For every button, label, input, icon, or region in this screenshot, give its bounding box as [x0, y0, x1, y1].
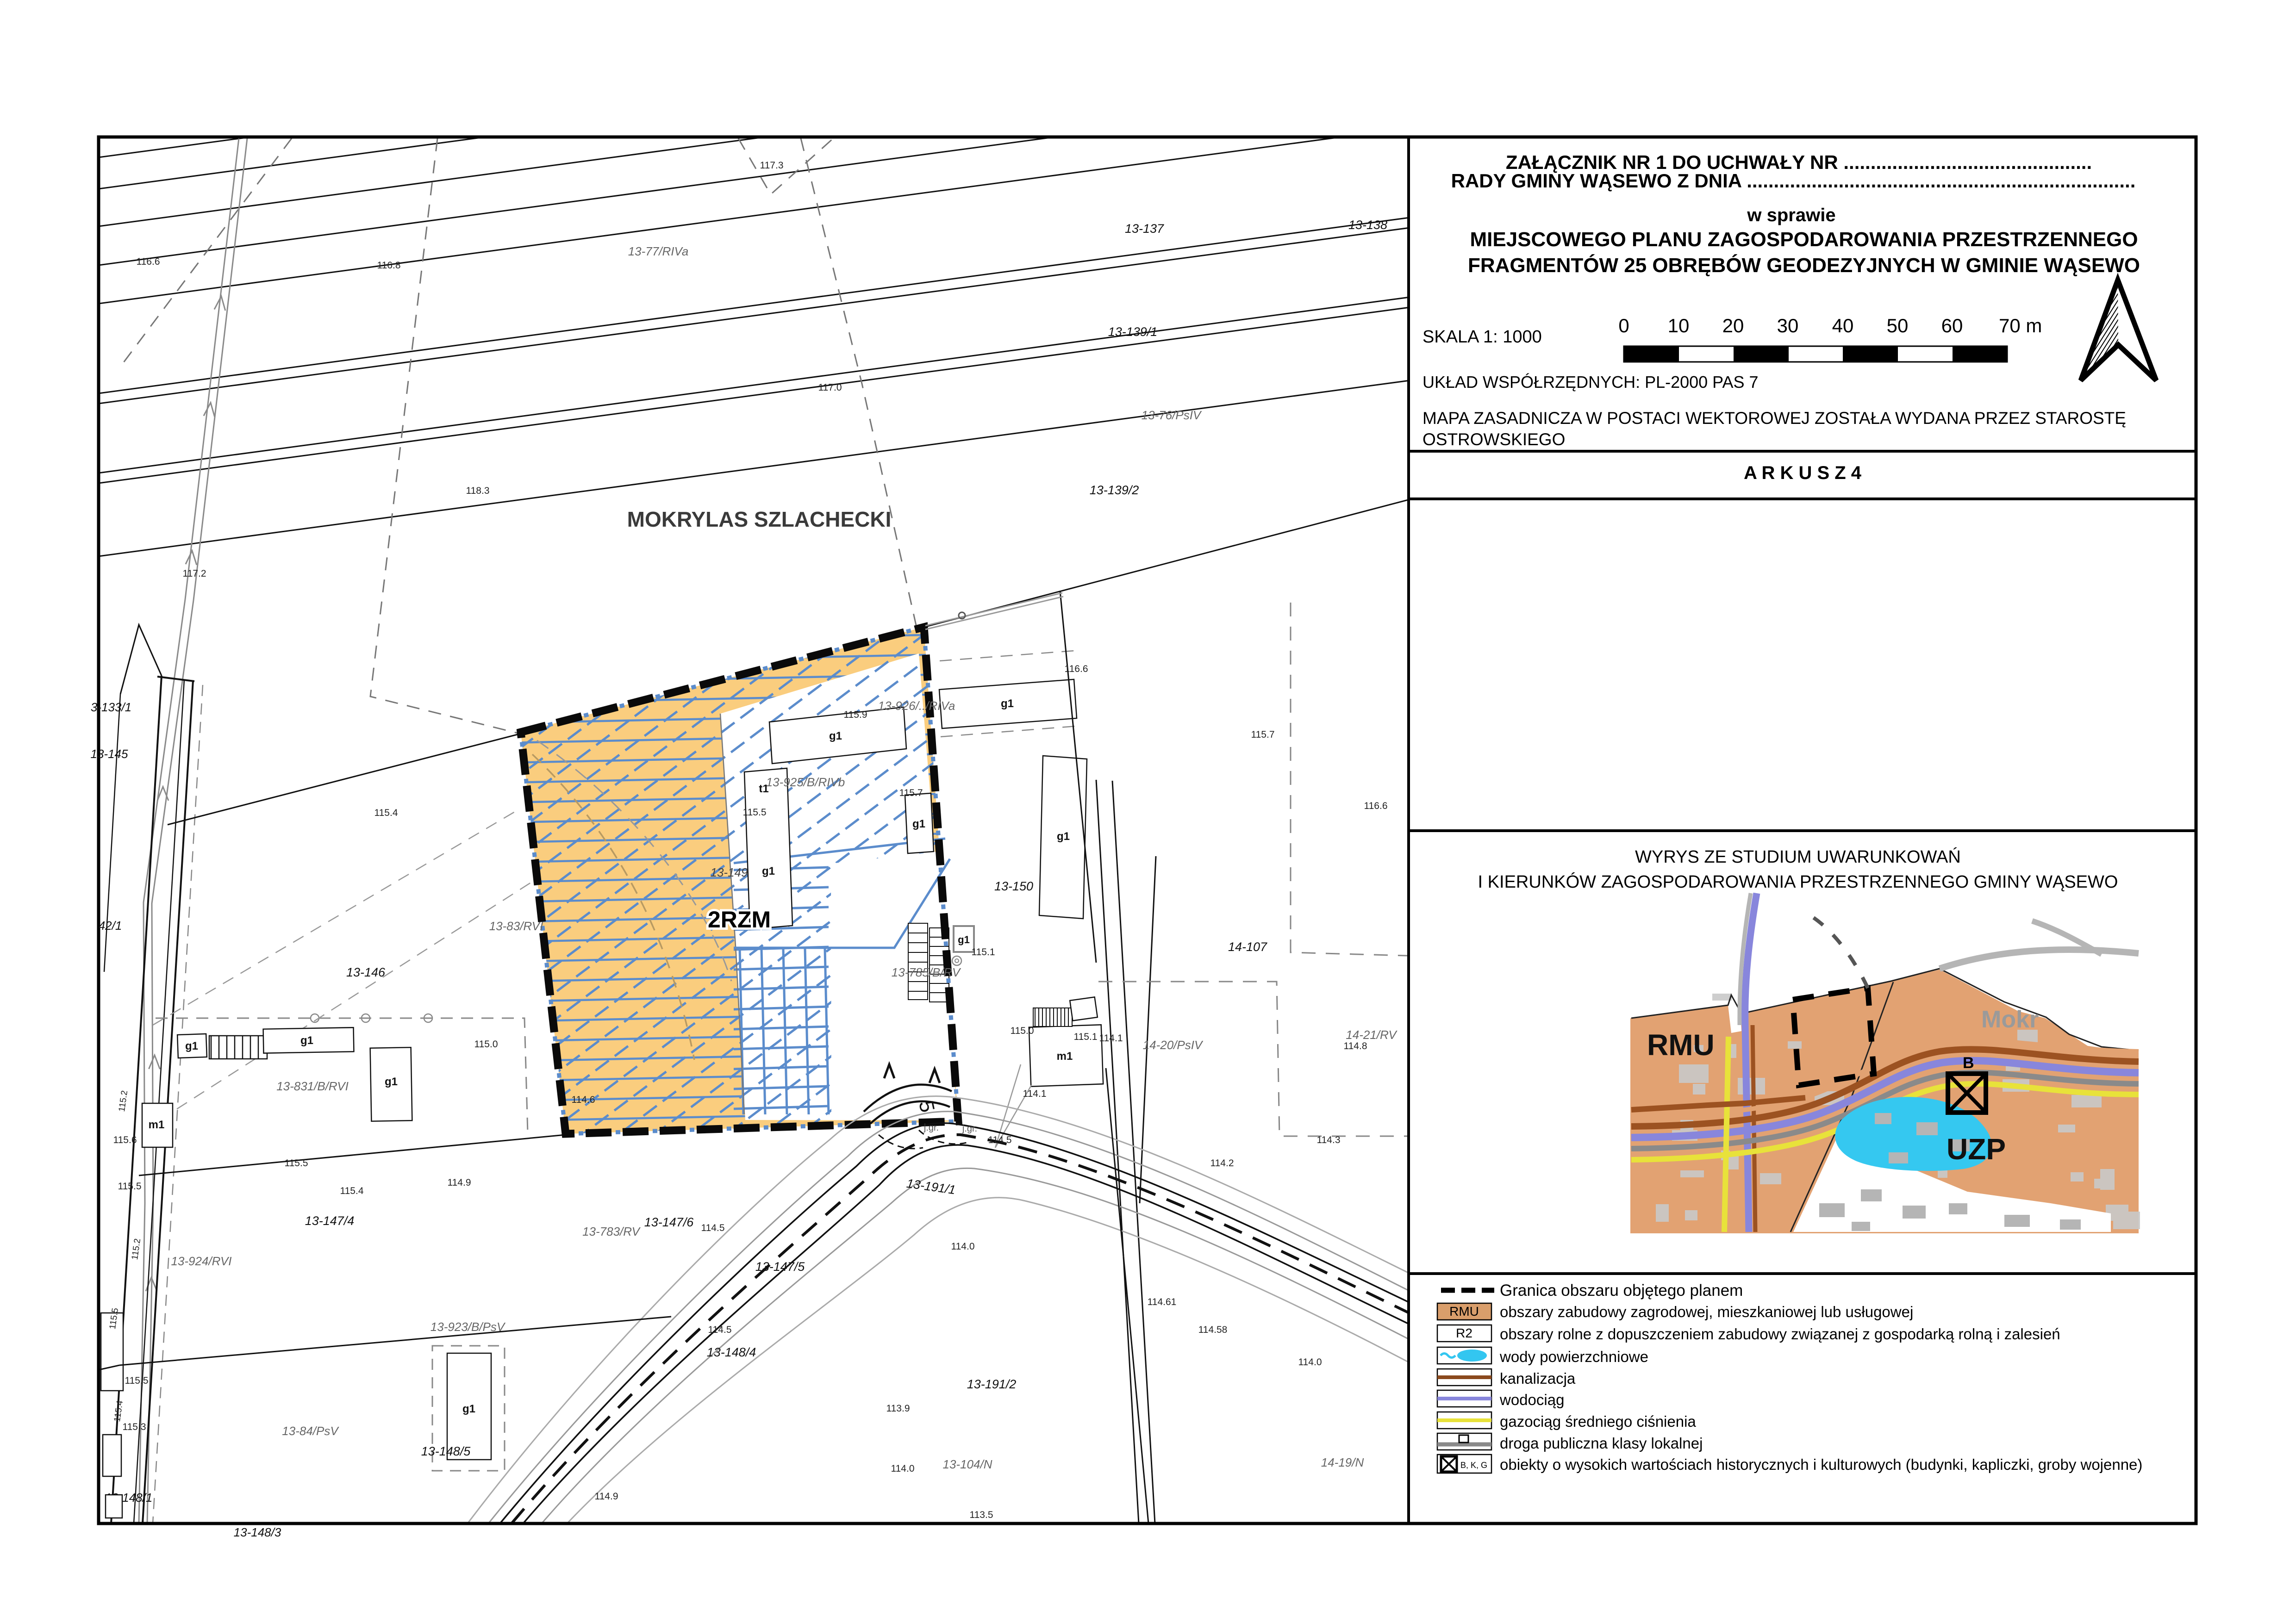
svg-text:13-926/../RIVa: 13-926/../RIVa: [878, 699, 955, 713]
svg-text:13-925/B/RIVb: 13-925/B/RIVb: [766, 775, 845, 789]
svg-text:20: 20: [1722, 315, 1744, 336]
svg-text:14-107: 14-107: [1228, 940, 1267, 954]
svg-text:115.4: 115.4: [374, 808, 398, 818]
svg-text:60: 60: [1941, 315, 1963, 336]
svg-text:13-84/PsV: 13-84/PsV: [282, 1424, 339, 1438]
svg-text:114.3: 114.3: [1317, 1135, 1341, 1145]
svg-text:113.9: 113.9: [886, 1403, 910, 1414]
svg-text:116.6: 116.6: [1065, 664, 1088, 674]
svg-text:115.9: 115.9: [844, 709, 867, 720]
svg-text:RMU: RMU: [1647, 1028, 1715, 1062]
svg-text:13-923/B/PsV: 13-923/B/PsV: [430, 1320, 506, 1334]
svg-text:g1: g1: [1057, 830, 1070, 843]
svg-text:13-104/N: 13-104/N: [943, 1457, 992, 1471]
svg-text:UKŁAD WSPÓŁRZĘDNYCH: PL-2000 P: UKŁAD WSPÓŁRZĘDNYCH: PL-2000 PAS 7: [1423, 373, 1759, 392]
svg-text:115.5: 115.5: [118, 1181, 142, 1192]
svg-text:116.6: 116.6: [137, 256, 160, 267]
svg-text:117.2: 117.2: [183, 568, 206, 579]
svg-text:13-138: 13-138: [1348, 218, 1387, 232]
svg-text:RADY GMINY WĄSEWO Z DNIA .....: RADY GMINY WĄSEWO Z DNIA ...............…: [1451, 170, 2136, 192]
svg-text:114.0: 114.0: [891, 1463, 915, 1474]
svg-text:MAPA ZASADNICZA W POSTACI WEKT: MAPA ZASADNICZA W POSTACI WEKTOROWEJ ZOS…: [1423, 409, 2126, 428]
svg-text:13-831/B/RVI: 13-831/B/RVI: [276, 1079, 349, 1093]
svg-text:OSTROWSKIEGO: OSTROWSKIEGO: [1423, 430, 1565, 449]
svg-text:116.8: 116.8: [377, 260, 401, 271]
svg-text:obszary rolne z dopuszczeniem: obszary rolne z dopuszczeniem zabudowy z…: [1500, 1325, 2060, 1343]
svg-text:13-924/RVI: 13-924/RVI: [171, 1254, 231, 1268]
svg-text:B: B: [1963, 1054, 1974, 1072]
svg-text:RMU: RMU: [1449, 1304, 1479, 1318]
svg-text:wodociąg: wodociąg: [1499, 1391, 1564, 1408]
svg-text:114.0: 114.0: [1298, 1357, 1322, 1368]
svg-text:13-83/RVI: 13-83/RVI: [489, 919, 543, 933]
svg-text:13-139/1: 13-139/1: [1108, 325, 1158, 339]
svg-text:g1: g1: [300, 1034, 313, 1047]
svg-text:13-147/5: 13-147/5: [755, 1260, 805, 1274]
svg-text:115.3: 115.3: [123, 1422, 146, 1432]
svg-text:j.gr.: j.gr.: [923, 1123, 939, 1133]
svg-text:13-139/2: 13-139/2: [1090, 483, 1139, 497]
svg-text:115.6: 115.6: [113, 1135, 137, 1145]
svg-text:114.8: 114.8: [1344, 1041, 1367, 1051]
svg-text:114.9: 114.9: [595, 1491, 618, 1502]
svg-text:MIEJSCOWEGO PLANU ZAGOSPODAROW: MIEJSCOWEGO PLANU ZAGOSPODAROWANIA PRZES…: [1470, 228, 2138, 251]
svg-text:114.2: 114.2: [1210, 1158, 1234, 1169]
svg-text:118.3: 118.3: [466, 485, 490, 496]
svg-text:14-21/RV: 14-21/RV: [1346, 1028, 1398, 1042]
svg-text:13-785/B/RV: 13-785/B/RV: [892, 965, 961, 979]
svg-text:116.6: 116.6: [1364, 801, 1388, 811]
svg-text:kanalizacja: kanalizacja: [1500, 1370, 1576, 1387]
svg-text:13-146: 13-146: [346, 965, 386, 979]
svg-text:g1: g1: [912, 818, 925, 830]
svg-text:13-77/RIVa: 13-77/RIVa: [628, 244, 689, 258]
svg-text:wody powierzchniowe: wody powierzchniowe: [1499, 1348, 1648, 1365]
svg-text:114.9: 114.9: [448, 1177, 471, 1188]
svg-text:70 m: 70 m: [1999, 315, 2042, 336]
svg-text:14-19/N: 14-19/N: [1321, 1455, 1364, 1469]
svg-text:115.5: 115.5: [285, 1158, 308, 1169]
svg-text:114.61: 114.61: [1148, 1297, 1177, 1307]
svg-text:13-76/PsIV: 13-76/PsIV: [1142, 408, 1202, 422]
svg-text:13-147/4: 13-147/4: [305, 1214, 355, 1228]
svg-text:115.4: 115.4: [340, 1186, 364, 1196]
svg-text:114.1: 114.1: [1099, 1033, 1123, 1044]
svg-text:FRAGMENTÓW 25 OBRĘBÓW GEODEZYJ: FRAGMENTÓW 25 OBRĘBÓW GEODEZYJNYCH W GMI…: [1468, 254, 2140, 277]
svg-text:j.gr.: j.gr.: [962, 1124, 977, 1134]
svg-text:13-150: 13-150: [994, 879, 1033, 893]
svg-text:WYRYS ZE STUDIUM UWARUNKOWAŃ: WYRYS ZE STUDIUM UWARUNKOWAŃ: [1635, 847, 1961, 867]
svg-text:w sprawie: w sprawie: [1747, 205, 1835, 225]
svg-text:g1: g1: [1001, 697, 1014, 710]
svg-text:Granica obszaru objętego plane: Granica obszaru objętego planem: [1500, 1281, 1743, 1300]
svg-text:g1: g1: [385, 1076, 398, 1088]
svg-text:115.5: 115.5: [125, 1375, 149, 1386]
svg-text:114.5: 114.5: [708, 1325, 732, 1335]
svg-text:115.5: 115.5: [743, 807, 767, 818]
svg-text:30: 30: [1777, 315, 1799, 336]
svg-text:114.5: 114.5: [701, 1223, 725, 1233]
svg-text:114.1: 114.1: [1023, 1088, 1047, 1099]
svg-text:42/1: 42/1: [99, 919, 122, 933]
svg-text:114.0: 114.0: [951, 1241, 975, 1252]
svg-text:gazociąg średniego ciśnienia: gazociąg średniego ciśnienia: [1500, 1413, 1696, 1430]
svg-text:114.6: 114.6: [572, 1094, 595, 1105]
svg-text:13-147/6: 13-147/6: [644, 1215, 694, 1229]
svg-text:115.7: 115.7: [899, 788, 923, 798]
svg-text:R2: R2: [1456, 1326, 1472, 1340]
svg-text:115.0: 115.0: [474, 1039, 498, 1050]
svg-text:117.3: 117.3: [760, 160, 784, 171]
svg-text:g1: g1: [762, 865, 775, 877]
svg-text:115.0: 115.0: [1011, 1026, 1034, 1036]
svg-text:13-137: 13-137: [1125, 222, 1164, 236]
svg-text:14-20/PsIV: 14-20/PsIV: [1143, 1038, 1204, 1052]
svg-text:g1: g1: [185, 1040, 198, 1052]
svg-text:m1: m1: [149, 1119, 165, 1131]
svg-text:obszary zabudowy zagrodowej, m: obszary zabudowy zagrodowej, mieszkaniow…: [1500, 1303, 1913, 1320]
svg-text:SKALA 1: 1000: SKALA 1: 1000: [1423, 327, 1542, 347]
svg-text:40: 40: [1832, 315, 1854, 336]
svg-text:MOKRYLAS SZLACHECKI: MOKRYLAS SZLACHECKI: [627, 507, 892, 531]
svg-text:13-191/2: 13-191/2: [967, 1377, 1017, 1391]
svg-text:A R K U S Z 4: A R K U S Z 4: [1744, 463, 1862, 483]
svg-text:114.5: 114.5: [988, 1135, 1012, 1145]
svg-text:13-783/RV: 13-783/RV: [582, 1225, 641, 1238]
svg-text:3-133/1: 3-133/1: [91, 700, 131, 714]
svg-text:13-149: 13-149: [711, 865, 748, 879]
svg-text:2RZM: 2RZM: [708, 907, 771, 933]
svg-text:117.0: 117.0: [818, 382, 842, 393]
svg-text:13-145: 13-145: [91, 747, 128, 761]
svg-text:g1: g1: [829, 730, 842, 742]
svg-text:113.5: 113.5: [970, 1510, 993, 1520]
svg-text:g1: g1: [462, 1403, 475, 1415]
svg-text:13-148/5: 13-148/5: [421, 1444, 471, 1458]
svg-text:I KIERUNKÓW ZAGOSPODAROWANIA P: I KIERUNKÓW ZAGOSPODAROWANIA PRZESTRZENN…: [1478, 872, 2118, 892]
svg-text:Mokr: Mokr: [1981, 1006, 2039, 1033]
svg-text:droga publiczna klasy lokalnej: droga publiczna klasy lokalnej: [1500, 1435, 1703, 1452]
svg-text:115.1: 115.1: [1074, 1032, 1098, 1042]
svg-text:g1: g1: [958, 934, 970, 945]
svg-text:t1: t1: [759, 783, 768, 795]
svg-text:115.7: 115.7: [1251, 729, 1275, 740]
svg-text:m1: m1: [1057, 1050, 1073, 1063]
svg-text:115.1: 115.1: [972, 947, 995, 958]
svg-text:B, K, G: B, K, G: [1460, 1461, 1487, 1470]
svg-text:UZP: UZP: [1947, 1132, 2006, 1166]
svg-text:13-148/4: 13-148/4: [707, 1345, 756, 1359]
svg-text:50: 50: [1887, 315, 1909, 336]
svg-text:114.58: 114.58: [1198, 1325, 1228, 1335]
svg-text:10: 10: [1668, 315, 1690, 336]
svg-text:0: 0: [1618, 315, 1629, 336]
svg-text:13-148/3: 13-148/3: [234, 1525, 281, 1539]
svg-text:obiekty o wysokich wartościach: obiekty o wysokich wartościach historycz…: [1500, 1456, 2142, 1473]
